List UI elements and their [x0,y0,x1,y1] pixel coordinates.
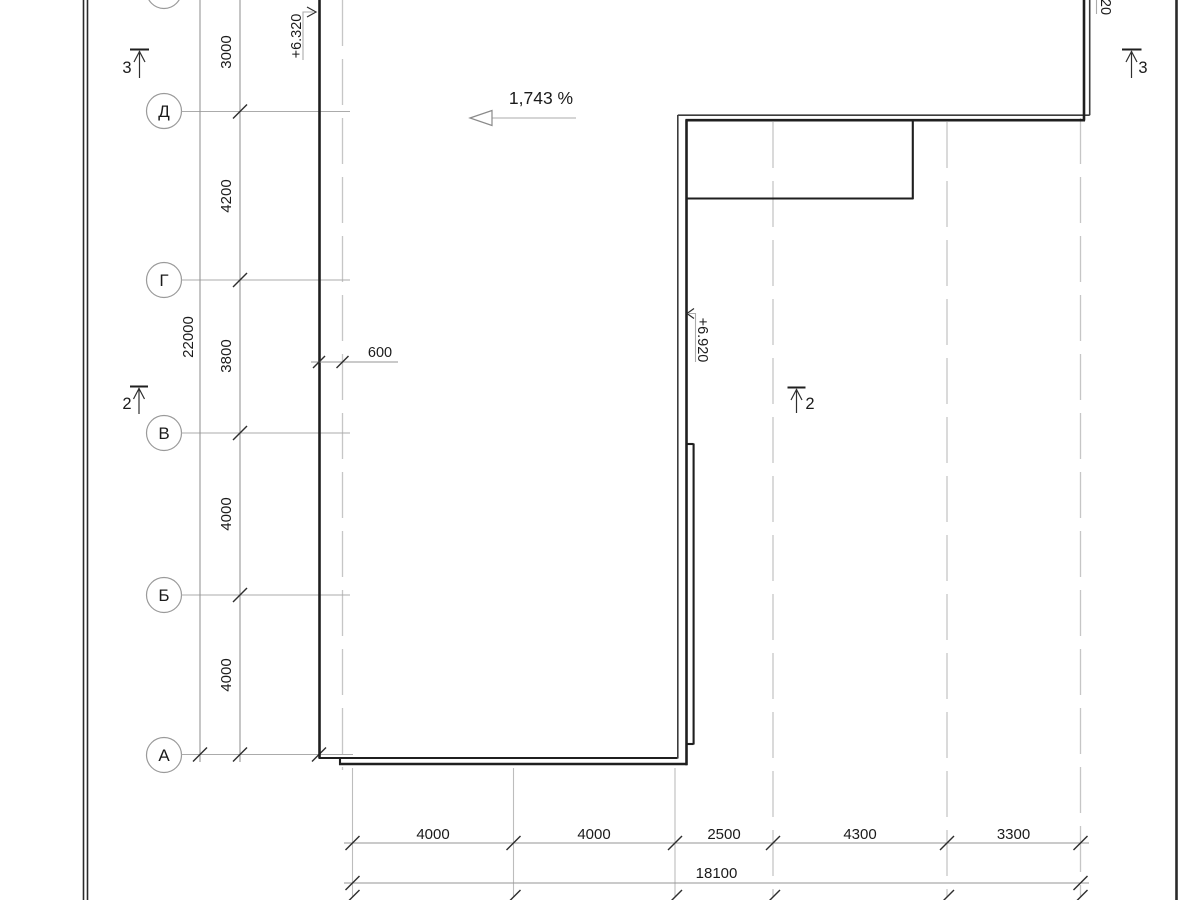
dim-label-4000-lower: 4000 [218,658,235,691]
axis-bubble-top-cut [147,0,182,9]
section-2-left-label: 2 [122,395,131,413]
elevation-top-right-label: 20 [1097,0,1113,15]
dim-label-4200: 4200 [218,179,235,212]
axis-label-v: В [158,424,169,443]
dim-label-18100: 18100 [696,865,738,882]
axis-label-a: А [158,746,170,765]
section-3-left-label: 3 [122,59,131,77]
dim-label-4000-a: 4000 [416,826,449,843]
drawing-sheet: Д Г В Б А 3000 4200 3800 4000 4000 22000 [0,0,1200,900]
axis-label-d: Д [158,102,170,121]
dim-label-4000-b: 4000 [577,826,610,843]
dim-label-3000: 3000 [218,35,235,68]
section-2-middle-label: 2 [805,395,814,413]
slope-label: 1,743 % [509,88,573,108]
dim-label-600: 600 [368,345,392,361]
dim-label-22000: 22000 [180,316,197,358]
offset-dimension: 600 [311,345,398,368]
dim-label-3800: 3800 [218,339,235,372]
axis-label-b: Б [158,586,169,605]
dim-label-4300: 4300 [843,826,876,843]
section-markers: 3 3 2 2 [122,50,1147,415]
elevation-left-label: +6.320 [289,14,305,59]
dim-label-2500: 2500 [707,826,740,843]
dim-label-3300: 3300 [997,826,1030,843]
elevation-middle-label: +6.920 [694,318,710,363]
elevation-marks: +6.320 +6.920 20 [289,0,1113,362]
roof-plan-drawing: Д Г В Б А 3000 4200 3800 4000 4000 22000 [0,0,1200,900]
slope-arrow-head [470,111,492,126]
bottom-dimension-chain: 4000 4000 2500 4300 3300 18100 [344,826,1089,900]
dim-label-4000-upper: 4000 [218,497,235,530]
grid-lines [343,0,1081,897]
vertical-dimension-chain: 3000 4200 3800 4000 4000 22000 [180,0,326,762]
row-axis-markers: Д Г В Б А [147,0,354,773]
axis-label-g: Г [159,271,168,290]
section-3-right-label: 3 [1138,59,1147,77]
slope-annotation: 1,743 % [470,88,576,126]
building-outline [319,0,1090,765]
